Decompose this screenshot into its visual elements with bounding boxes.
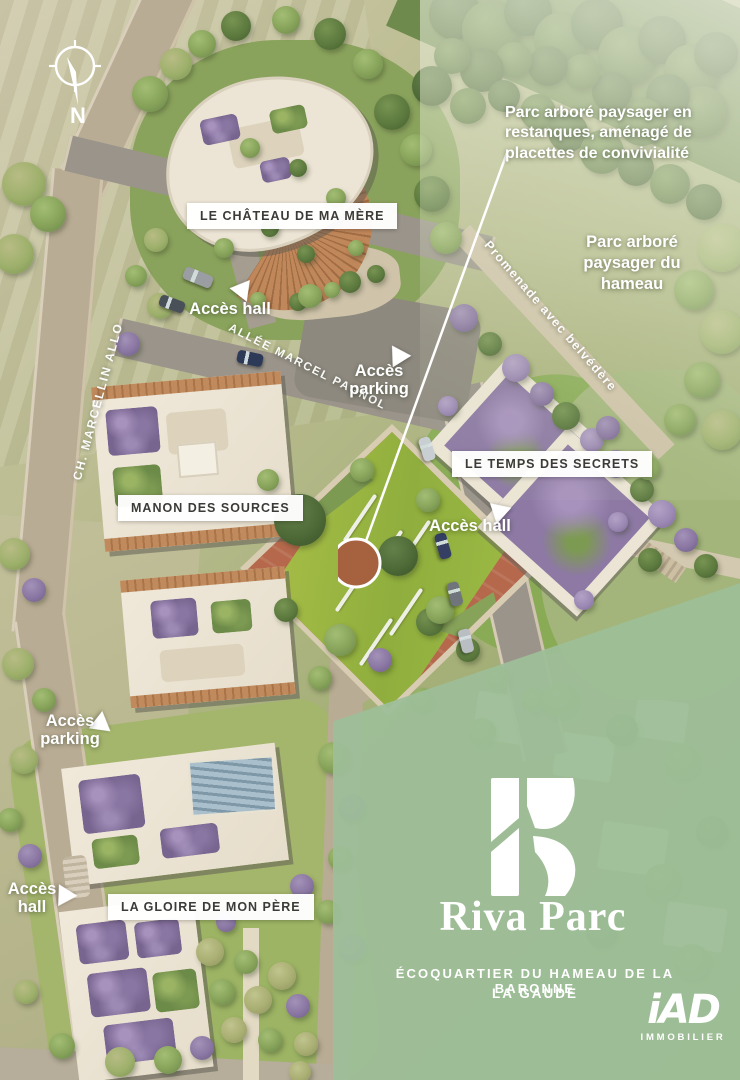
compass-rose: N xyxy=(40,33,112,129)
access-label-gloire-hall: Accès hall xyxy=(0,880,64,917)
access-label-gloire-parking: Accès parking xyxy=(26,712,114,749)
building-label-chateau: LE CHÂTEAU DE MA MÈRE xyxy=(187,203,397,229)
access-arrow-chateau-hall xyxy=(229,273,258,302)
building-label-gloire: LA GLOIRE DE MON PÈRE xyxy=(108,894,314,920)
building-label-manon: MANON DES SOURCES xyxy=(118,495,303,521)
access-label-chateau-hall: Accès hall xyxy=(188,300,272,318)
labels-layer: N LE CHÂTEAU DE MA MÈRE MANON DES SOURCE… xyxy=(0,0,740,1080)
street-label-ch-marcellin-allo: CH. MARCELLIN ALLO xyxy=(70,321,126,482)
access-label-chateau-parking: Accès parking xyxy=(334,362,424,399)
annotation-parc-restanques: Parc arboré paysager en restanques, amén… xyxy=(505,103,723,164)
annotation-parc-hameau: Parc arboré paysager du hameau xyxy=(566,232,698,295)
compass-needle xyxy=(67,57,78,105)
compass-north-label: N xyxy=(70,103,86,128)
access-label-temps-hall: Accès hall xyxy=(428,517,512,535)
building-label-temps: LE TEMPS DES SECRETS xyxy=(452,451,652,477)
site-map: N LE CHÂTEAU DE MA MÈRE MANON DES SOURCE… xyxy=(0,0,740,1080)
